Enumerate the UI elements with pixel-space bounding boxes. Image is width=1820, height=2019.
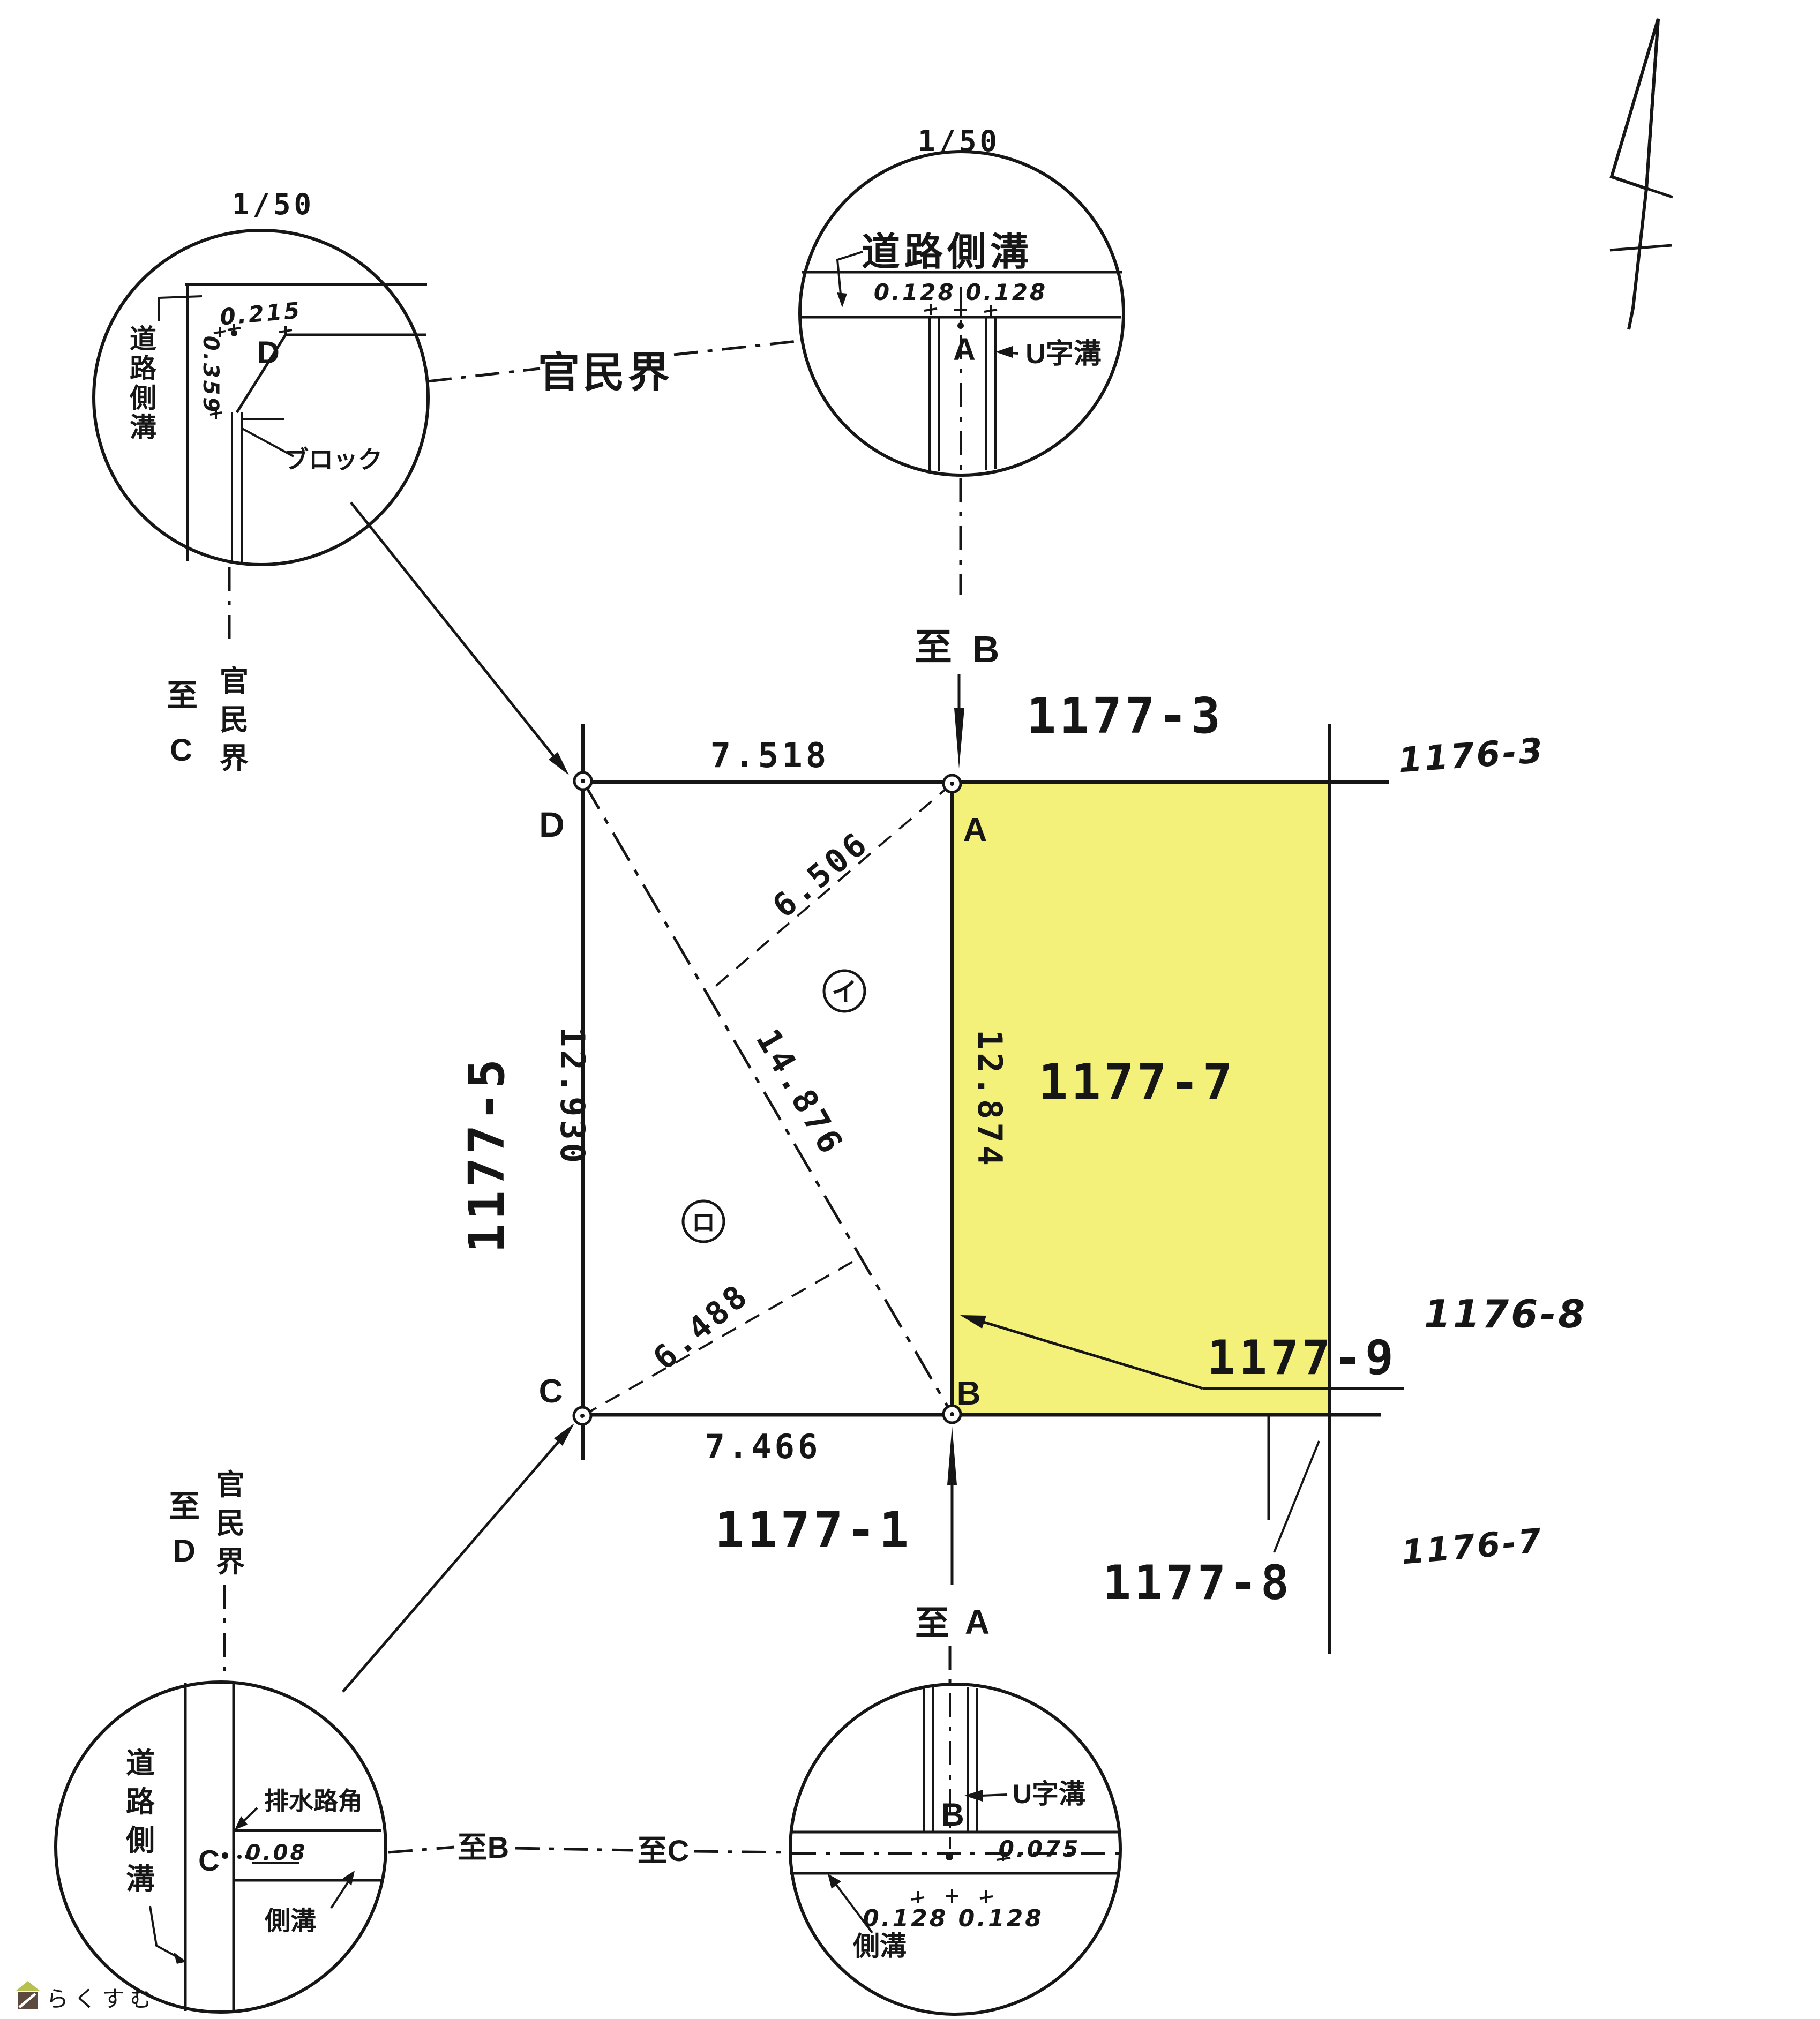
detail-c-road-ditch-label: 道路側溝	[125, 1747, 155, 1895]
dim-top-7518: 7.518	[710, 736, 830, 776]
detail-circle-d: 1/50 0.215 D 0.359 ブロック 道路側溝	[94, 187, 428, 565]
kanminkai-label-left: 官民界	[220, 665, 249, 775]
to-a-letter: A	[965, 1603, 990, 1641]
to-c-letter: C	[170, 733, 192, 768]
parcel-label-1177-8: 1177-8	[1103, 1555, 1292, 1610]
vertex-label-a: A	[963, 812, 987, 849]
dim-bottom-7466: 7.466	[705, 1427, 821, 1466]
detail-b-dims-0128: 0.128 0.128	[863, 1905, 1044, 1932]
parcel-label-1177-7: 1177-7	[1038, 1054, 1235, 1111]
vertex-label-d: D	[539, 805, 565, 844]
vertex-label-b: B	[957, 1375, 981, 1412]
detail-b-u-ditch-label: U字溝	[1013, 1779, 1085, 1809]
to-c-label-mid: 至C	[638, 1834, 689, 1867]
vertex-label-c: C	[539, 1373, 563, 1410]
parcel-label-1177-1: 1177-1	[715, 1502, 912, 1559]
to-c-kanji: 至	[167, 678, 198, 713]
detail-b-u-ditch-leader	[982, 1795, 1007, 1796]
dim-height-6488: 6.488	[646, 1276, 757, 1377]
detail-b-dim-0075: 0.075	[999, 1836, 1081, 1862]
dim-height-6506: 6.506	[766, 824, 876, 925]
detail-d-block-leader	[242, 429, 294, 456]
detail-a-road-ditch-leader	[837, 252, 863, 300]
detail-c-road-ditch-leader	[150, 1906, 180, 1958]
to-a-kanji: 至	[915, 1604, 949, 1642]
detail-d-point-label: D	[257, 335, 280, 370]
detail-d-road-ditch-leader	[159, 296, 202, 321]
parcel-label-1176-8: 1176-8	[1424, 1292, 1587, 1337]
watermark-text: らくすむ	[46, 1986, 158, 2012]
triangle-mark-ro: ロ	[683, 1201, 724, 1242]
survey-drawing-page: D A B C 7.518 7.466 12.930 12.874 14.876…	[0, 0, 1820, 2019]
to-b-letter: B	[972, 628, 1000, 670]
to-b-kanji: 至	[915, 626, 952, 668]
detail-b-point-label: B	[941, 1797, 964, 1833]
detail-d-scale: 1/50	[232, 187, 314, 221]
height-line-c	[582, 1257, 860, 1416]
svg-text:ロ: ロ	[692, 1210, 715, 1236]
detail-b-continuation: 至 A	[915, 1426, 990, 1686]
dim-left-12930: 12.930	[553, 1027, 592, 1166]
north-arrow	[1610, 19, 1673, 329]
detail-circle-a: 1/50 道路側溝 0.128 0.128 A U字溝	[800, 124, 1124, 475]
detail-circle-b: B 0.075 U字溝 0.128 0.128 側溝	[790, 1684, 1120, 2014]
detail-d-block-label: ブロック	[284, 446, 383, 474]
watermark: らくすむ	[16, 1981, 158, 2012]
cadastral-survey-map: D A B C 7.518 7.466 12.930 12.874 14.876…	[0, 0, 1820, 2019]
detail-c-point-label: C	[198, 1844, 220, 1877]
to-d-kanji: 至	[169, 1489, 200, 1524]
detail-a-continuation: 至 B	[915, 478, 999, 769]
detail-b-side-ditch-label: 側溝	[852, 1931, 907, 1961]
arrow-detail-to-d	[351, 502, 569, 775]
kanminkai-label-top: 官民界	[538, 349, 673, 396]
detail-d-dim-0215: 0.215	[219, 297, 303, 330]
detail-c-drain-corner-label: 排水路角	[264, 1787, 363, 1815]
detail-b-dim-ticks	[911, 1889, 993, 1903]
detail-c-dim-008: 0.08	[246, 1841, 308, 1865]
to-b-label-mid: 至B	[458, 1830, 509, 1864]
detail-d-dim-0359: 0.359	[198, 336, 223, 415]
kanminkai-label-bottom: 官民界	[216, 1469, 245, 1578]
parcel-label-1177-5: 1177-5	[458, 1056, 515, 1253]
svg-text:イ: イ	[832, 978, 857, 1007]
triangle-mark-i: イ	[824, 971, 865, 1011]
detail-a-dims-0128: 0.128 0.128	[874, 279, 1047, 305]
leader-1177-8	[1274, 1441, 1319, 1552]
to-d-letter: D	[173, 1534, 196, 1568]
dim-right-12874: 12.874	[970, 1030, 1009, 1169]
detail-d-road-ditch-label: 道路側溝	[129, 324, 157, 442]
detail-a-u-ditch-label: U字溝	[1025, 339, 1102, 370]
detail-circle-c: C 0.08 排水路角 側溝 道路側溝	[56, 1585, 386, 2012]
detail-a-scale: 1/50	[918, 124, 1000, 158]
parcel-label-1176-7: 1176-7	[1400, 1521, 1545, 1572]
connector-c-to-b: 至B 至C	[388, 1830, 791, 1867]
parcel-label-1177-3: 1177-3	[1027, 687, 1224, 745]
detail-c-side-ditch-label: 側溝	[264, 1907, 316, 1935]
detail-d-continuation: 至 C 官民界	[167, 567, 249, 775]
detail-a-road-ditch-label: 道路側溝	[862, 231, 1033, 274]
diagonal-d-b	[583, 781, 952, 1414]
detail-c-continuation: 至 D 官民界	[169, 1469, 245, 1578]
watermark-house-roof-icon	[16, 1981, 40, 1991]
arrow-detail-to-c	[343, 1423, 574, 1692]
parcel-label-1177-9: 1177-9	[1207, 1330, 1397, 1385]
parcel-label-1176-3: 1176-3	[1397, 731, 1546, 781]
detail-a-point-label: A	[953, 332, 976, 367]
